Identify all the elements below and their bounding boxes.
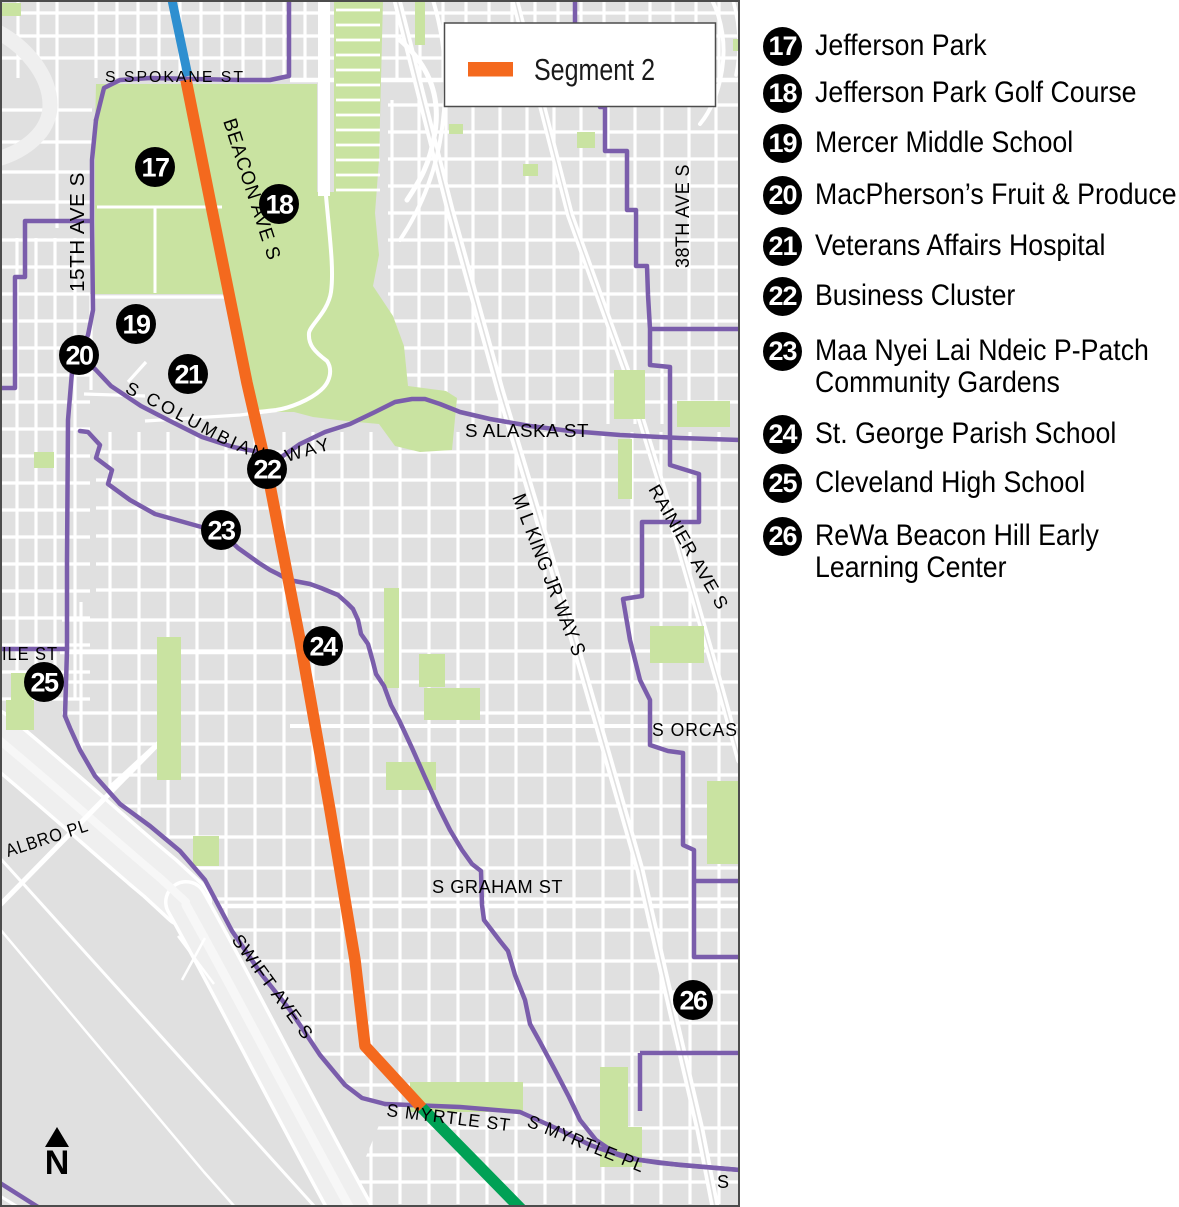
svg-text:19: 19 [122,310,151,340]
svg-text:ILE ST: ILE ST [2,644,58,664]
svg-text:26: 26 [679,986,708,1016]
svg-text:N: N [45,1144,70,1182]
svg-text:23: 23 [207,516,236,546]
svg-text:S ALASKA ST: S ALASKA ST [465,421,589,441]
svg-text:S: S [717,1172,730,1192]
svg-text:S ORCAS: S ORCAS [652,720,738,740]
svg-text:24: 24 [309,632,338,662]
svg-text:20: 20 [65,341,93,371]
svg-text:17: 17 [141,153,169,183]
svg-text:38TH AVE S: 38TH AVE S [673,164,694,268]
svg-text:22: 22 [253,455,281,485]
svg-text:18: 18 [265,190,294,220]
svg-text:25: 25 [30,668,59,698]
svg-text:S GRAHAM ST: S GRAHAM ST [432,877,563,897]
svg-text:21: 21 [174,360,203,390]
svg-text:S SPOKANE ST: S SPOKANE ST [105,69,245,86]
svg-text:Segment 2: Segment 2 [534,52,655,87]
svg-text:15TH AVE S: 15TH AVE S [67,172,89,292]
